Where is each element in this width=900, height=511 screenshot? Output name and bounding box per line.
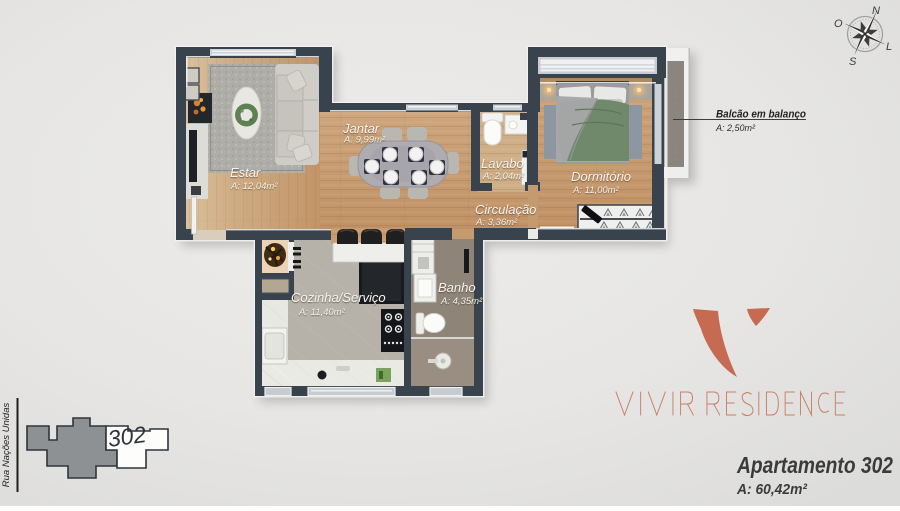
svg-text:Rua Nações Unidas: Rua Nações Unidas <box>1 403 12 488</box>
svg-text:A: 11,00m²: A: 11,00m² <box>572 185 620 196</box>
svg-text:L: L <box>886 41 892 53</box>
svg-text:A: 11,40m²: A: 11,40m² <box>298 307 346 318</box>
svg-text:A: 9,99m²: A: 9,99m² <box>343 135 386 146</box>
svg-text:Cozinha/Serviço: Cozinha/Serviço <box>291 290 386 305</box>
svg-text:A: 60,42m²: A: 60,42m² <box>736 481 808 498</box>
svg-text:Banho: Banho <box>438 280 476 295</box>
svg-text:N: N <box>872 5 880 17</box>
svg-text:A: 4,35m²: A: 4,35m² <box>440 296 483 307</box>
svg-text:Apartamento 302: Apartamento 302 <box>736 452 893 478</box>
svg-text:A: 3,36m²: A: 3,36m² <box>475 217 518 228</box>
svg-text:302: 302 <box>106 421 148 452</box>
svg-text:Lavabo: Lavabo <box>481 156 524 171</box>
svg-text:Estar: Estar <box>230 165 261 180</box>
svg-text:Circulação: Circulação <box>475 202 536 217</box>
svg-text:A: 12,04m²: A: 12,04m² <box>230 181 278 192</box>
svg-text:O: O <box>834 18 843 30</box>
svg-text:A: 2,04m²: A: 2,04m² <box>482 171 525 182</box>
svg-text:Balcão em balanço: Balcão em balanço <box>716 109 806 121</box>
svg-text:Dormitório: Dormitório <box>571 169 631 184</box>
svg-text:S: S <box>849 56 857 68</box>
svg-text:A: 2,50m²: A: 2,50m² <box>715 123 756 133</box>
